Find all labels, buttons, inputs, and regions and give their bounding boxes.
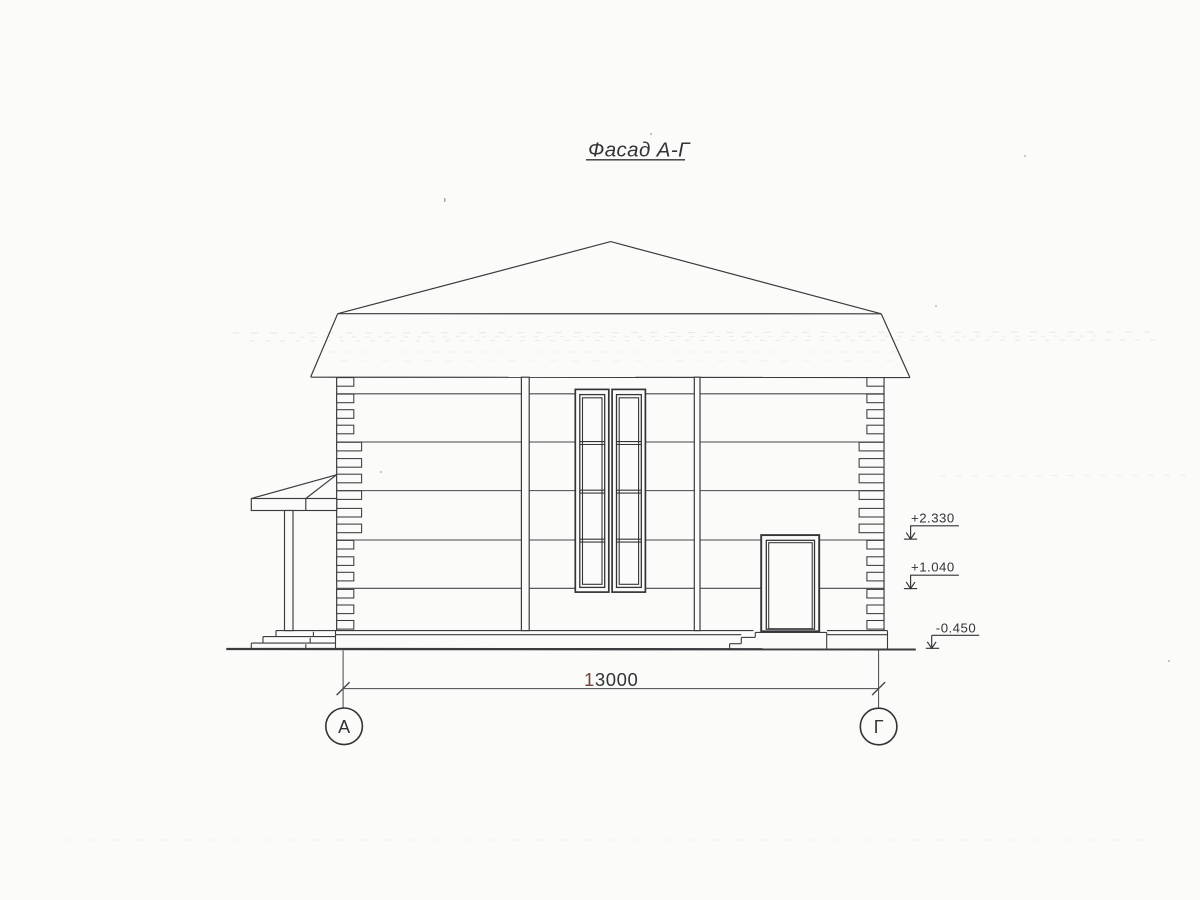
svg-text:Г: Г bbox=[874, 717, 884, 737]
svg-text:А: А bbox=[338, 717, 350, 737]
svg-text:+2.330: +2.330 bbox=[911, 510, 955, 525]
svg-text:Фасад А-Г: Фасад А-Г bbox=[588, 139, 691, 162]
svg-text:+1.040: +1.040 bbox=[911, 560, 955, 575]
svg-text:-0.450: -0.450 bbox=[936, 621, 976, 636]
svg-text:13000: 13000 bbox=[584, 669, 638, 690]
